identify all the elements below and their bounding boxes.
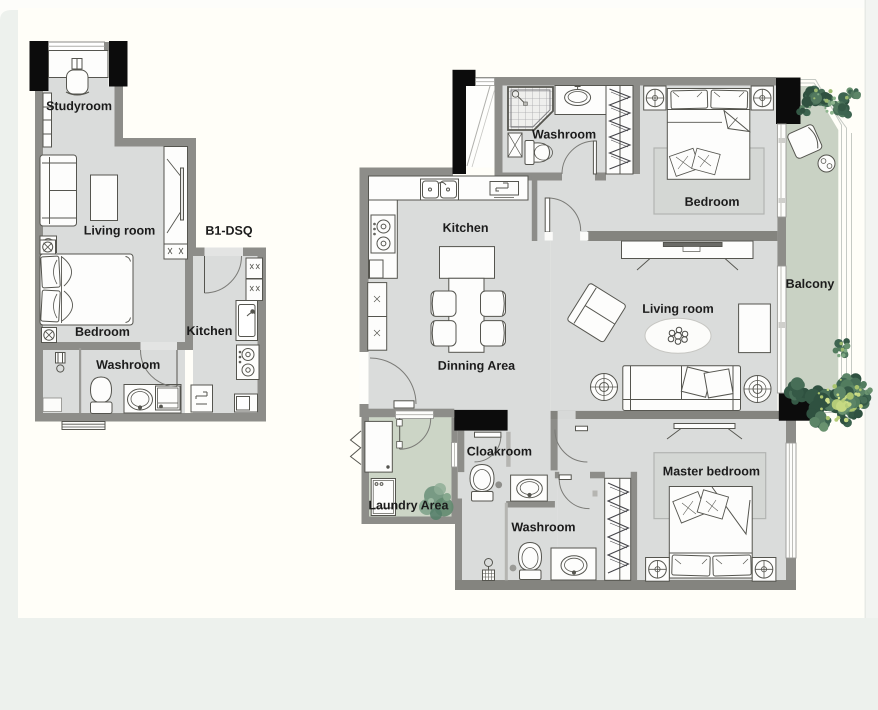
svg-text:Washroom: Washroom	[532, 127, 596, 141]
svg-text:Kitchen: Kitchen	[187, 324, 233, 338]
svg-text:Balcony: Balcony	[786, 277, 835, 291]
svg-text:Bedroom: Bedroom	[75, 325, 130, 339]
svg-text:Washroom: Washroom	[511, 520, 575, 534]
svg-text:Washroom: Washroom	[96, 358, 160, 372]
svg-text:Bedroom: Bedroom	[685, 195, 740, 209]
svg-text:B1-DSQ: B1-DSQ	[205, 224, 253, 238]
svg-text:Living room: Living room	[84, 224, 156, 238]
svg-text:Cloakroom: Cloakroom	[467, 445, 532, 459]
svg-text:Kitchen: Kitchen	[443, 221, 489, 235]
svg-text:Laundry Area: Laundry Area	[368, 498, 449, 512]
svg-text:Studyroom: Studyroom	[46, 99, 112, 113]
svg-text:Master bedroom: Master bedroom	[663, 464, 760, 478]
svg-text:Dinning Area: Dinning Area	[438, 359, 516, 373]
svg-text:Living room: Living room	[642, 302, 714, 316]
